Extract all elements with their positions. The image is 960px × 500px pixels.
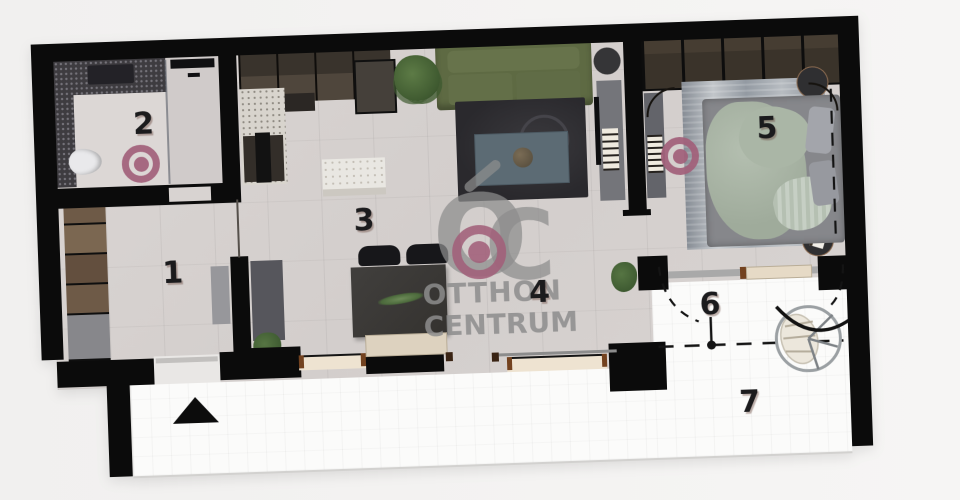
door-swing-arc	[825, 264, 845, 309]
terrace-walkway-floor	[130, 367, 659, 478]
shower-valve	[188, 73, 200, 77]
dining-chair	[358, 245, 401, 266]
wardrobe-panel-gray	[67, 314, 111, 359]
door-clip	[492, 352, 499, 361]
kitchen-tall-cabinet	[353, 59, 397, 114]
bathroom-sink	[87, 64, 134, 85]
door-swing-arc	[659, 266, 699, 323]
wall-hall-living-stub	[230, 256, 251, 357]
wardrobe-panel	[64, 224, 107, 253]
dashed-guide-line	[831, 89, 836, 242]
brand-wordmark-line2: CENTRUM	[423, 308, 578, 341]
wardrobe-panel	[66, 284, 109, 313]
bathroom-door-threshold	[169, 186, 211, 201]
living-sideboard	[250, 260, 285, 341]
entry-arrow-icon	[172, 396, 219, 424]
window-frame-tip	[299, 355, 304, 368]
hall-wardrobe	[63, 194, 111, 361]
brand-bullseye-dot	[468, 241, 491, 264]
room-label-7: 7	[739, 387, 761, 418]
wardrobe-panel	[65, 254, 108, 283]
floor-plan: O C OTTHON CENTRUM 1 2 3 4 5 6 7	[31, 16, 876, 480]
shower-head	[170, 58, 214, 69]
art-print	[602, 128, 619, 171]
room-label-4: 4	[529, 278, 551, 309]
wall-exterior-column	[106, 359, 133, 477]
hall-cabinet	[211, 266, 231, 325]
room-label-2: 2	[133, 109, 155, 140]
bullseye-marker-dot	[672, 148, 688, 164]
annotation-dot	[707, 340, 716, 349]
door-clip	[446, 352, 453, 361]
room-label-6: 6	[699, 290, 721, 321]
kitchen-appliance	[255, 132, 272, 182]
wardrobe-door-arc	[647, 88, 676, 117]
wall-living-bottom-a	[243, 346, 301, 374]
room-label-3: 3	[353, 206, 375, 237]
room-label-5: 5	[756, 114, 778, 145]
window-frame-tip	[361, 353, 366, 366]
kitchen-island	[322, 157, 386, 196]
bedroom-loggia-slider	[746, 264, 812, 279]
window-frame-tip	[740, 267, 746, 279]
room-label-1: 1	[162, 258, 184, 289]
window-frame-tip	[507, 357, 512, 370]
wardrobe-door-arc	[808, 83, 837, 112]
window-living-1	[299, 353, 366, 370]
window-frame-tip	[602, 354, 607, 367]
sofa-back-cushion	[447, 46, 580, 73]
bullseye-marker-dot	[133, 156, 149, 172]
